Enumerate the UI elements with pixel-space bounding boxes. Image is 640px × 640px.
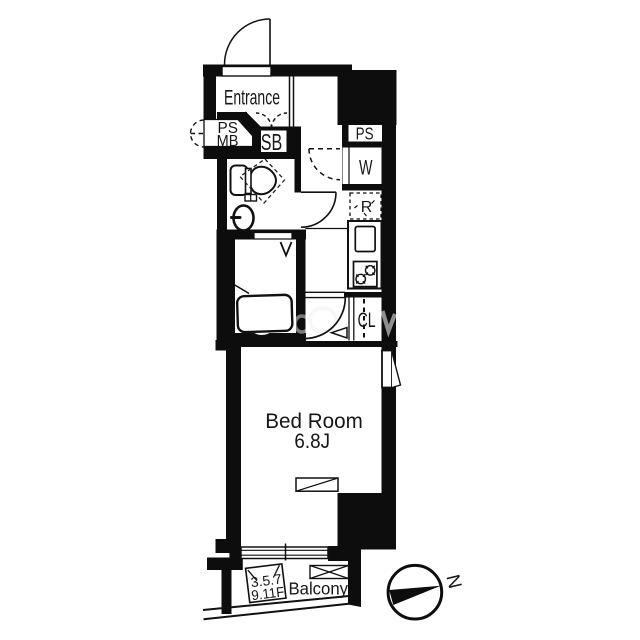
svg-text:6.8J: 6.8J (294, 430, 330, 453)
svg-text:PS: PS (356, 124, 374, 144)
svg-text:SB: SB (261, 129, 283, 155)
svg-text:CL: CL (358, 309, 376, 332)
svg-text:W: W (359, 157, 373, 180)
svg-text:Balcony: Balcony (289, 578, 349, 598)
svg-text:Entrance: Entrance (224, 87, 280, 110)
svg-text:MB: MB (217, 133, 239, 150)
svg-text:R: R (361, 199, 373, 216)
